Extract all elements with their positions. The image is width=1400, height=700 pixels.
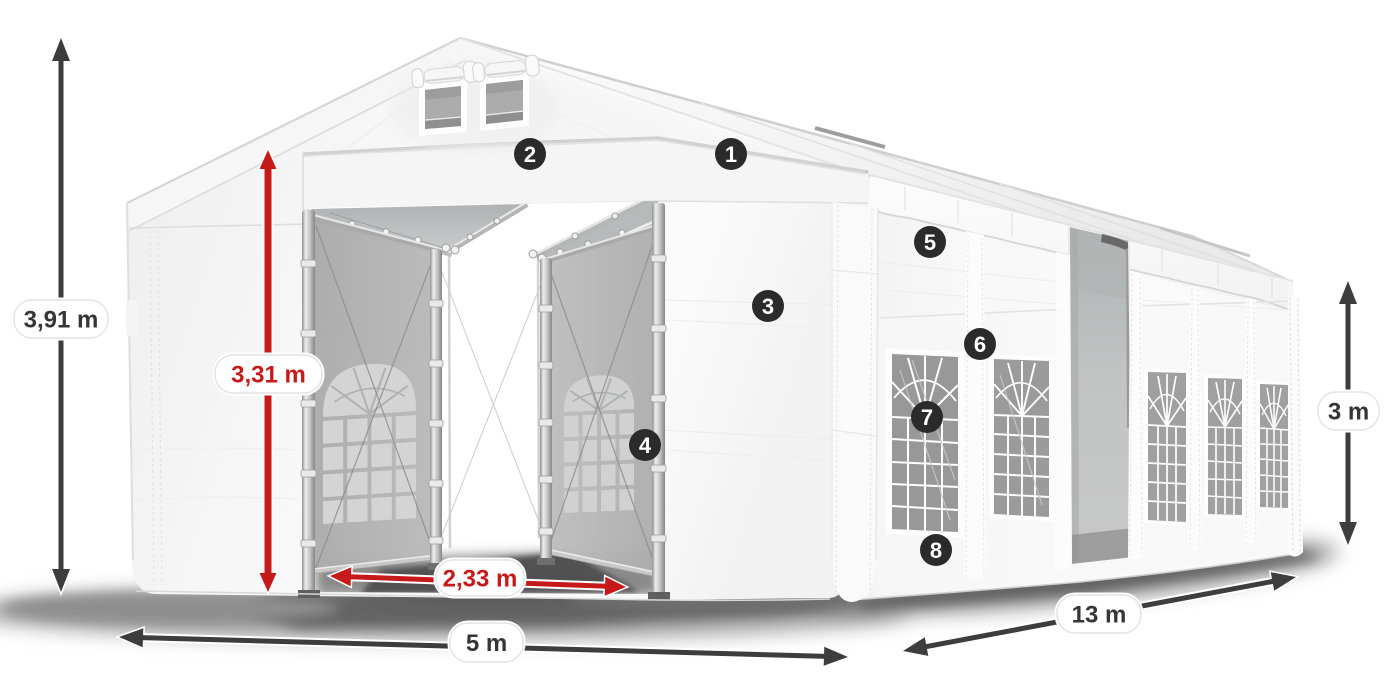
svg-text:13 m: 13 m <box>1072 602 1127 629</box>
svg-text:3,91 m: 3,91 m <box>24 307 99 334</box>
svg-text:7: 7 <box>921 405 933 430</box>
svg-text:2: 2 <box>524 142 536 167</box>
svg-text:1: 1 <box>725 142 737 167</box>
svg-text:6: 6 <box>974 332 986 357</box>
svg-text:5 m: 5 m <box>466 630 507 657</box>
svg-text:8: 8 <box>930 538 942 563</box>
svg-text:3: 3 <box>762 294 774 319</box>
svg-text:5: 5 <box>924 230 936 255</box>
svg-text:3,31 m: 3,31 m <box>231 362 306 389</box>
svg-text:4: 4 <box>639 433 652 458</box>
svg-text:2,33 m: 2,33 m <box>443 566 518 593</box>
svg-text:3 m: 3 m <box>1328 399 1369 426</box>
